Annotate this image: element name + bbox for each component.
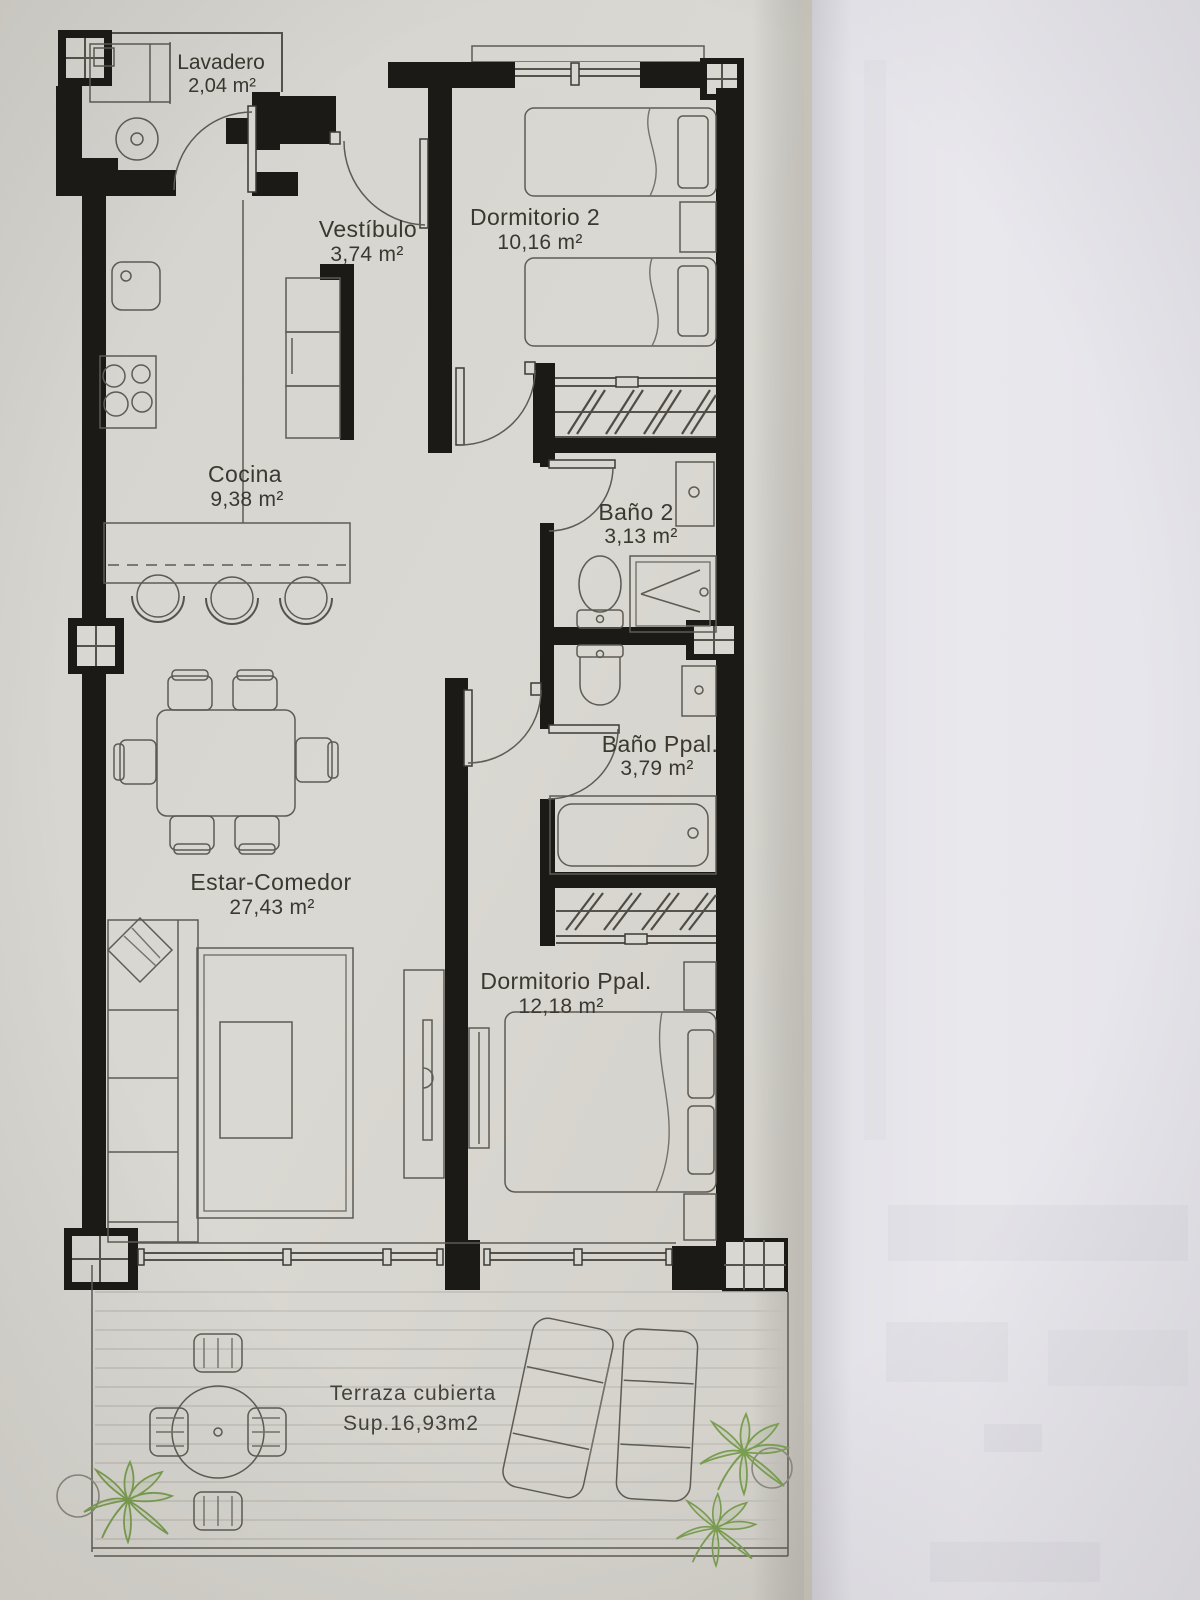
photo-of-floor-plan: Lavadero 2,04 m² Vestíbulo 3,74 m² Dormi… xyxy=(0,0,1200,1600)
floor-plan-canvas: Lavadero 2,04 m² Vestíbulo 3,74 m² Dormi… xyxy=(0,0,1200,1600)
photo-vignette xyxy=(0,0,1200,1600)
